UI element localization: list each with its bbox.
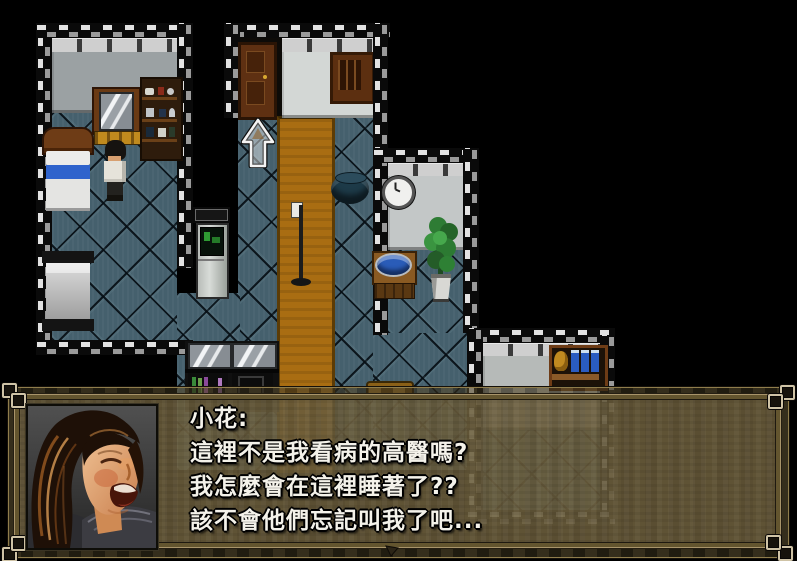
shelf-item [146, 108, 154, 117]
counter-glass [232, 343, 277, 369]
shelf-item [158, 128, 166, 137]
door-knob [263, 75, 267, 79]
potted-plant[interactable] [421, 214, 461, 304]
game-screen: 小花: 這裡不是我看病的高醫嗎? 我怎麼會在這裡睡著了?? 該不會他們忘記叫我了… [0, 0, 797, 561]
wall-cabinet[interactable] [330, 52, 375, 104]
dresser-mirror[interactable] [92, 87, 141, 143]
item-shelf[interactable] [140, 77, 183, 161]
bed-pillow [46, 151, 90, 165]
wall-clock[interactable] [382, 176, 415, 209]
shelf-item [158, 87, 164, 95]
bed-mattress [46, 263, 90, 321]
dialog-corner-knob [11, 536, 26, 551]
machine-screen-glyph [212, 237, 220, 243]
vending-machine[interactable] [193, 207, 230, 299]
machine-screen-glyph [204, 232, 210, 241]
dialog-text: 小花: 這裡不是我看病的高醫嗎? 我怎麼會在這裡睡著了?? 該不會他們忘記叫我了… [190, 402, 770, 538]
dialog-line-2: 我怎麼會在這裡睡著了?? [190, 470, 770, 504]
medicine-bottle [591, 350, 599, 372]
character-shoes [107, 195, 123, 201]
cabinet-panel [338, 60, 361, 90]
character-shirt [104, 161, 126, 182]
speaker-portrait [26, 404, 158, 550]
bed-rail-top [42, 251, 94, 263]
dialog-line-3: 該不會他們忘記叫我了吧... [190, 504, 770, 538]
iv-stand[interactable] [289, 200, 313, 292]
bed-stripe [46, 165, 90, 179]
mirror-glass [99, 92, 134, 131]
shelf-item [145, 88, 154, 95]
medicine-bottle [571, 350, 579, 372]
shelf-item [159, 109, 166, 117]
washbasin-bowl [377, 255, 410, 275]
washbasin[interactable] [372, 251, 417, 299]
door-panel [246, 51, 265, 73]
room1-border-bottom [36, 340, 193, 355]
dialog-speaker: 小花: [190, 402, 770, 436]
room1-border-top [36, 23, 193, 38]
wooden-door[interactable] [238, 42, 277, 120]
bed-1[interactable] [42, 127, 94, 211]
dialog-corner-knob [768, 394, 783, 409]
washbasin-base [374, 283, 415, 299]
medicine-bottle [581, 350, 589, 372]
machine-divider [198, 259, 224, 261]
destination-arrow-icon [241, 118, 275, 168]
iv-base [291, 278, 311, 286]
cauldron-rim [335, 172, 367, 184]
player-character[interactable] [99, 139, 131, 203]
shelf-item [169, 127, 175, 137]
shelf-plank [142, 119, 177, 122]
shelf-item [167, 88, 174, 95]
shelf-plank [142, 97, 177, 100]
continue-cursor-icon[interactable] [385, 542, 399, 554]
shelf-item [146, 127, 154, 137]
medicine-shelf-lip [552, 374, 599, 380]
shelf-item [169, 108, 175, 117]
counter-glass [188, 343, 232, 369]
medicine-shelf[interactable] [549, 345, 608, 391]
bed-rail-bottom [42, 319, 94, 331]
character-pants [107, 182, 123, 195]
iv-pole [299, 205, 303, 280]
room3-border-right [463, 148, 479, 333]
shelf-plank [142, 139, 177, 142]
machine-top-frame [193, 207, 230, 223]
door-panel [246, 81, 265, 105]
bed-blanket [46, 179, 90, 211]
medicine-sack [554, 351, 568, 371]
cauldron[interactable] [331, 171, 369, 209]
bed-2[interactable] [42, 251, 94, 335]
room4-border-top [467, 328, 615, 343]
room2-border-top [224, 23, 390, 38]
dialog-line-1: 這裡不是我看病的高醫嗎? [190, 436, 770, 470]
dialog-corner-knob [11, 393, 26, 408]
